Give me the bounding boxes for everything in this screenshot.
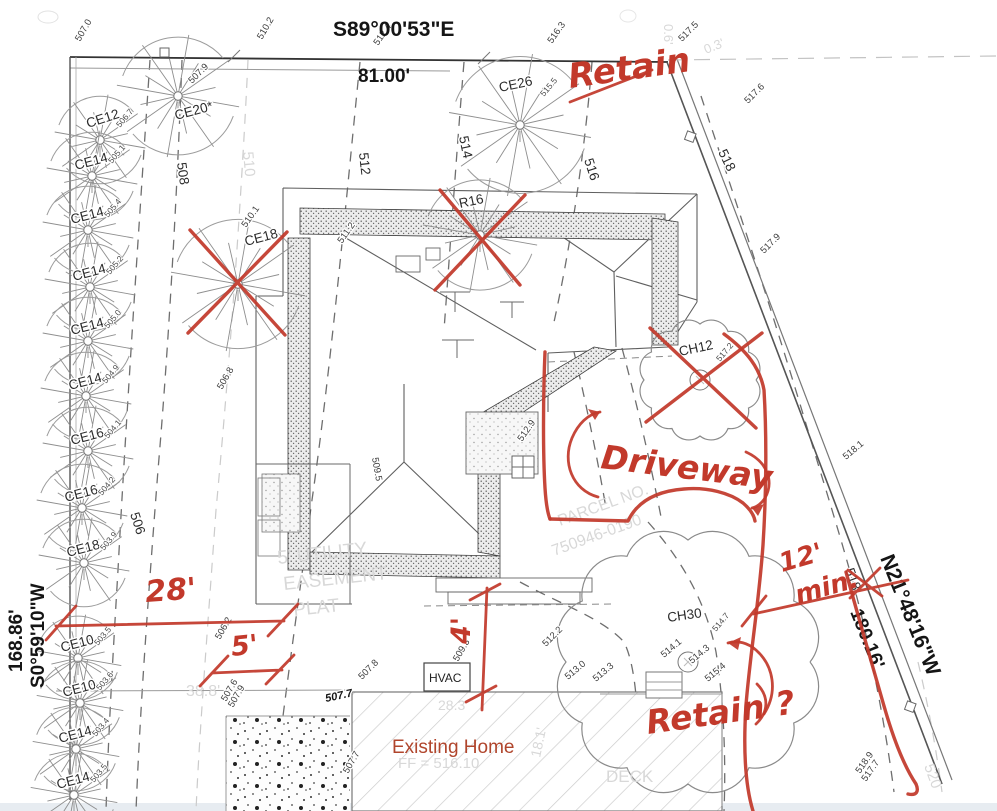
contour-label: 512: [356, 152, 373, 176]
dim-4-note: 4': [446, 617, 477, 645]
top-bearing: S89°00'53"E: [333, 18, 454, 41]
hvac-label: HVAC: [429, 671, 462, 685]
deck-step: [646, 672, 682, 698]
site-plan-sheet: HVAC CE12506.7CE20*CE14505.1CE14505.4CE1…: [0, 0, 997, 811]
hvac-unit: HVAC: [424, 663, 470, 691]
faded-label: DECK: [606, 767, 654, 786]
dim-5-note: 5': [229, 629, 259, 663]
left-bearing: S0°59'10"W: [28, 583, 49, 688]
faded-label: 38.8': [186, 683, 220, 700]
left-distance: 168.86': [6, 609, 27, 672]
top-distance: 81.00': [358, 66, 410, 87]
faded-label: 28.3': [438, 697, 468, 713]
concrete-patch: [226, 716, 350, 811]
existing-home-label: Existing Home: [392, 737, 515, 758]
dim-28-note: 28': [144, 572, 197, 610]
site-plan-drawing: HVAC CE12506.7CE20*CE14505.1CE14505.4CE1…: [0, 0, 997, 811]
contour-label: 508: [174, 161, 192, 185]
faded-label: 510: [239, 151, 258, 177]
